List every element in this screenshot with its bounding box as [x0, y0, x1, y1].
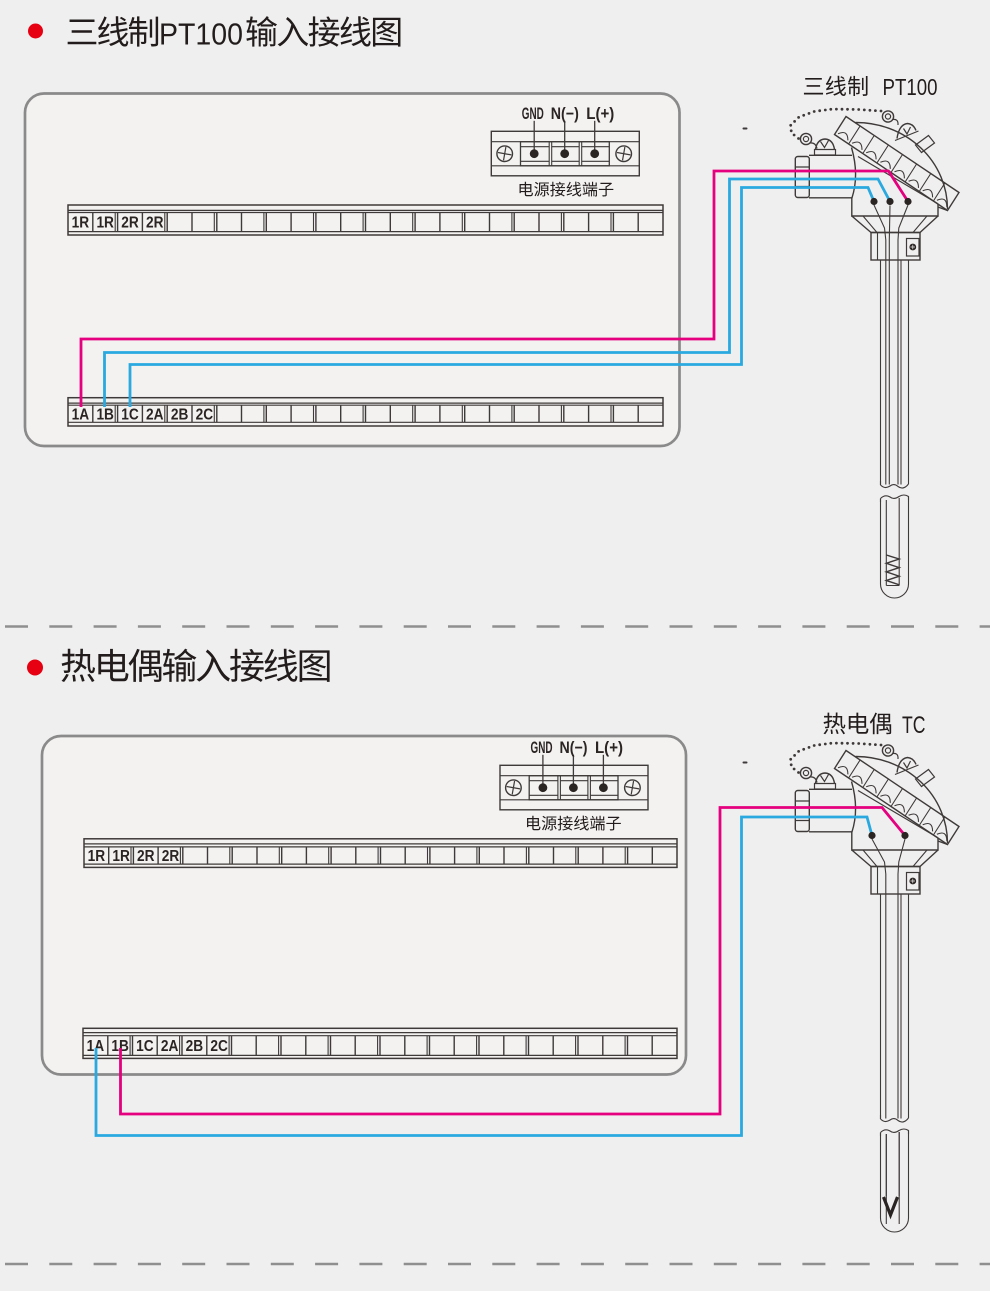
svg-text:1R: 1R: [112, 848, 130, 865]
svg-text:GND: GND: [531, 739, 553, 757]
svg-text:1R: 1R: [88, 848, 106, 865]
svg-text:N(−): N(−): [551, 105, 579, 123]
svg-text:2B: 2B: [171, 406, 189, 423]
svg-text:1A: 1A: [72, 406, 90, 423]
svg-text:2R: 2R: [162, 848, 180, 865]
svg-text:TC: TC: [902, 712, 926, 739]
svg-text:2A: 2A: [161, 1038, 179, 1055]
svg-text:2R: 2R: [137, 848, 155, 865]
svg-text:2C: 2C: [210, 1038, 228, 1055]
svg-text:1C: 1C: [136, 1038, 154, 1055]
svg-text:N(−): N(−): [560, 739, 588, 757]
svg-text:1R: 1R: [96, 215, 114, 232]
svg-text:2A: 2A: [146, 406, 164, 423]
svg-text:GND: GND: [522, 105, 544, 123]
svg-text:2C: 2C: [196, 406, 214, 423]
svg-text:L(+): L(+): [595, 739, 623, 757]
svg-text:1C: 1C: [121, 406, 139, 423]
svg-text:PT100: PT100: [159, 17, 243, 51]
svg-text:2R: 2R: [146, 215, 164, 232]
svg-text:1R: 1R: [72, 215, 90, 232]
svg-text:1B: 1B: [96, 406, 114, 423]
svg-text:PT100: PT100: [883, 74, 938, 100]
svg-text:2R: 2R: [121, 215, 139, 232]
svg-text:2B: 2B: [186, 1038, 204, 1055]
svg-text:L(+): L(+): [586, 105, 614, 123]
